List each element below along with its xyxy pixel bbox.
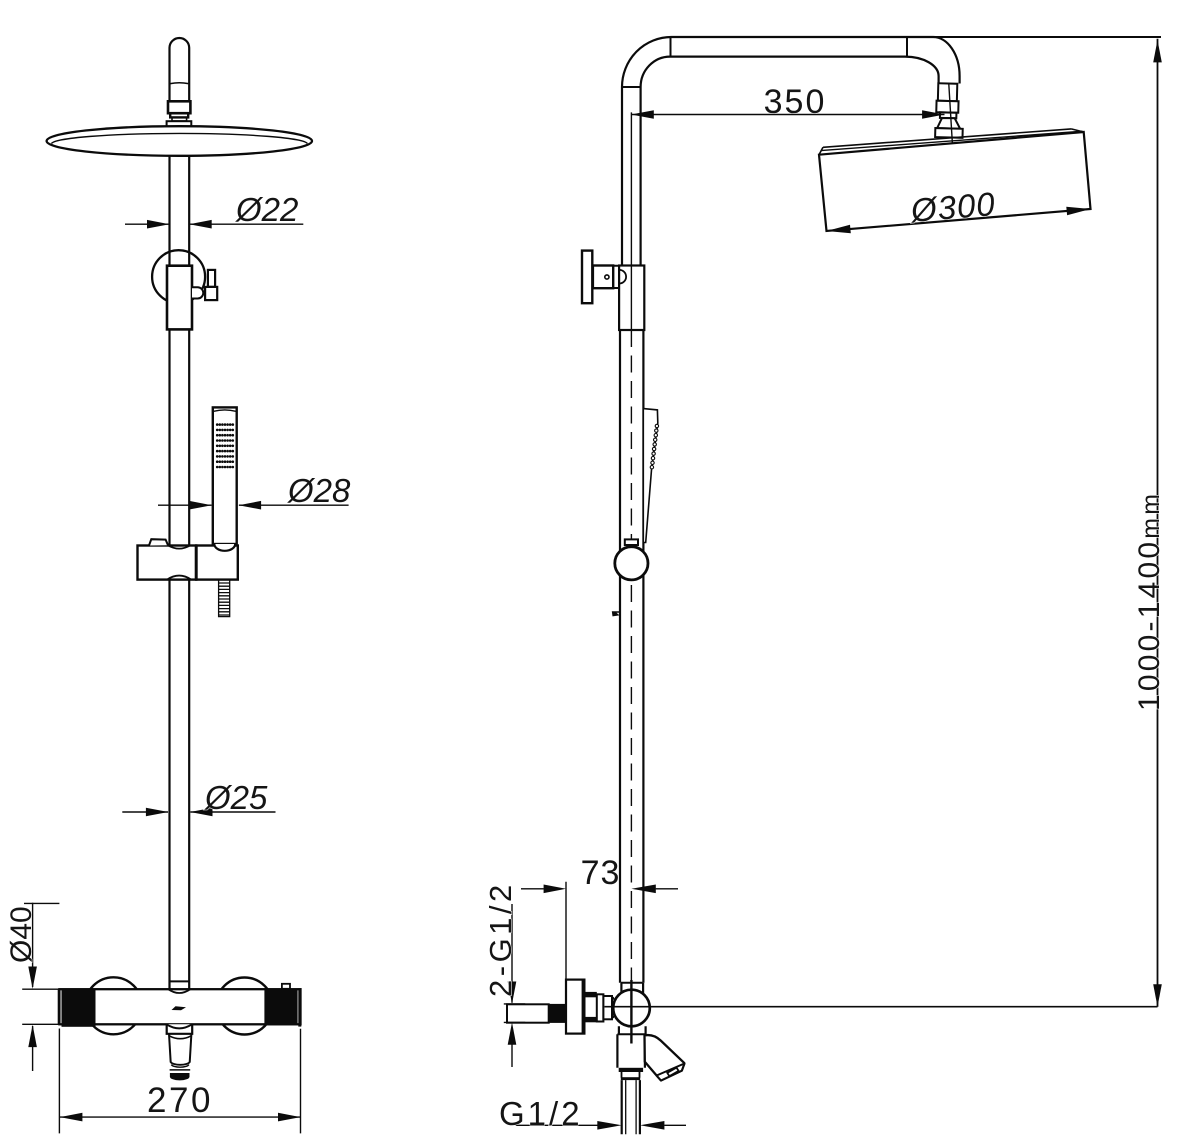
- svg-text:Ø22: Ø22: [235, 191, 298, 228]
- svg-text:1000-1400mm: 1000-1400mm: [1133, 491, 1166, 711]
- svg-text:G1/2: G1/2: [499, 1095, 583, 1132]
- svg-text:Ø40: Ø40: [5, 906, 38, 963]
- svg-text:270: 270: [147, 1081, 213, 1120]
- svg-text:73: 73: [581, 854, 621, 892]
- svg-text:Ø25: Ø25: [204, 779, 268, 816]
- svg-text:Ø300: Ø300: [908, 185, 997, 229]
- svg-text:2-G1/2: 2-G1/2: [483, 881, 518, 997]
- svg-text:Ø28: Ø28: [287, 472, 351, 509]
- svg-text:350: 350: [764, 83, 827, 121]
